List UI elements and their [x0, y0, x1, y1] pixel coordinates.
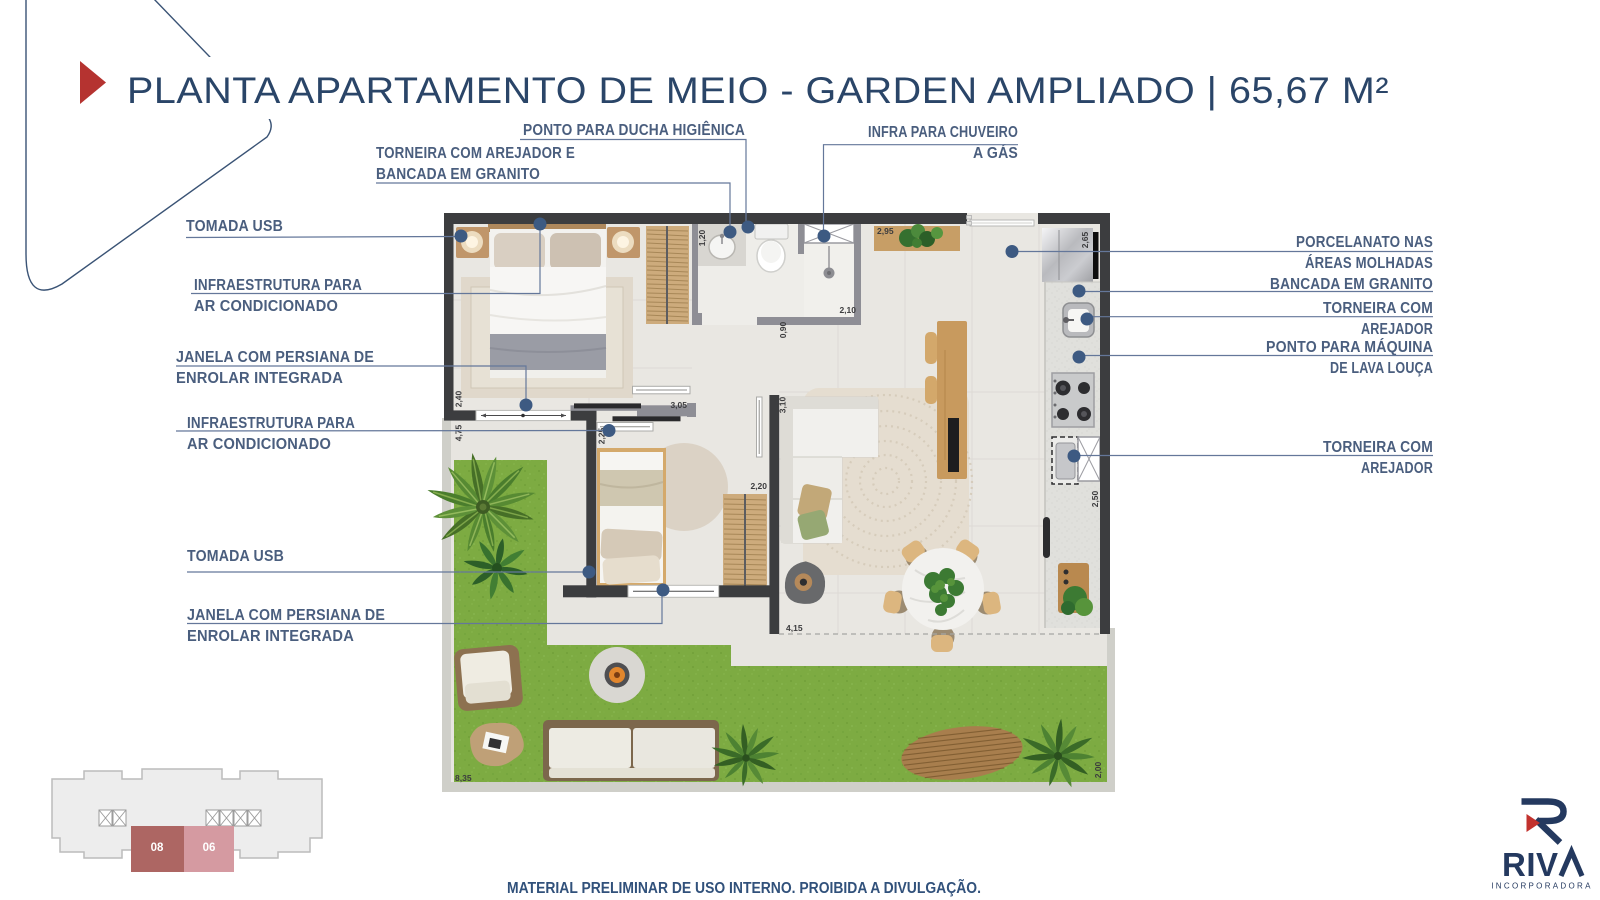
svg-text:TORNEIRA COM: TORNEIRA COM [1323, 300, 1433, 317]
svg-text:MATERIAL PRELIMINAR DE USO INT: MATERIAL PRELIMINAR DE USO INTERNO. PROI… [507, 879, 981, 897]
svg-text:08: 08 [151, 842, 164, 854]
svg-text:RIV: RIV [1502, 846, 1559, 883]
svg-text:BANCADA EM GRANITO: BANCADA EM GRANITO [1270, 276, 1433, 293]
svg-text:1,20: 1,20 [697, 229, 707, 246]
svg-text:2,50: 2,50 [1090, 490, 1100, 507]
svg-text:0,90: 0,90 [778, 321, 788, 338]
svg-text:INCORPORADORA: INCORPORADORA [1491, 882, 1592, 891]
svg-text:INFRAESTRUTURA PARA: INFRAESTRUTURA PARA [194, 277, 362, 294]
svg-text:PONTO PARA DUCHA HIGIÊNICA: PONTO PARA DUCHA HIGIÊNICA [523, 121, 745, 139]
svg-text:2,20: 2,20 [750, 481, 767, 491]
svg-text:AR CONDICIONADO: AR CONDICIONADO [187, 436, 331, 453]
svg-text:8,35: 8,35 [455, 773, 472, 783]
svg-text:2,40: 2,40 [454, 390, 464, 407]
svg-text:BANCADA EM GRANITO: BANCADA EM GRANITO [376, 166, 540, 183]
svg-text:INFRA PARA CHUVEIRO: INFRA PARA CHUVEIRO [868, 124, 1018, 141]
svg-text:TORNEIRA COM AREJADOR E: TORNEIRA COM AREJADOR E [376, 145, 575, 162]
svg-text:ÁREAS MOLHADAS: ÁREAS MOLHADAS [1305, 255, 1433, 272]
svg-text:ENROLAR INTEGRADA: ENROLAR INTEGRADA [187, 628, 354, 645]
svg-text:JANELA COM PERSIANA DE: JANELA COM PERSIANA DE [187, 607, 385, 624]
svg-text:PONTO PARA MÁQUINA: PONTO PARA MÁQUINA [1266, 339, 1433, 356]
svg-text:3,05: 3,05 [670, 400, 687, 410]
svg-text:2,95: 2,95 [877, 226, 894, 236]
svg-text:DE LAVA LOUÇA: DE LAVA LOUÇA [1330, 360, 1433, 377]
svg-text:4,75: 4,75 [454, 424, 464, 441]
svg-text:2,10: 2,10 [839, 305, 856, 315]
svg-text:06: 06 [203, 842, 216, 854]
svg-text:PORCELANATO NAS: PORCELANATO NAS [1296, 234, 1433, 251]
svg-text:4,15: 4,15 [786, 623, 803, 633]
svg-text:PLANTA APARTAMENTO DE MEIO - G: PLANTA APARTAMENTO DE MEIO - GARDEN AMPL… [127, 70, 1389, 111]
svg-text:3,10: 3,10 [778, 396, 788, 413]
svg-text:2,00: 2,00 [1093, 761, 1103, 778]
svg-text:2,65: 2,65 [1080, 231, 1090, 248]
svg-text:TORNEIRA COM: TORNEIRA COM [1323, 439, 1433, 456]
svg-text:ENROLAR INTEGRADA: ENROLAR INTEGRADA [176, 370, 343, 387]
svg-text:TOMADA USB: TOMADA USB [187, 548, 284, 565]
svg-text:AR CONDICIONADO: AR CONDICIONADO [194, 298, 338, 315]
svg-text:INFRAESTRUTURA PARA: INFRAESTRUTURA PARA [187, 415, 355, 432]
svg-text:TOMADA USB: TOMADA USB [186, 218, 283, 235]
svg-text:AREJADOR: AREJADOR [1361, 460, 1433, 477]
svg-text:AREJADOR: AREJADOR [1361, 321, 1433, 338]
svg-text:A GÁS: A GÁS [973, 145, 1018, 162]
svg-text:JANELA COM PERSIANA DE: JANELA COM PERSIANA DE [176, 349, 374, 366]
